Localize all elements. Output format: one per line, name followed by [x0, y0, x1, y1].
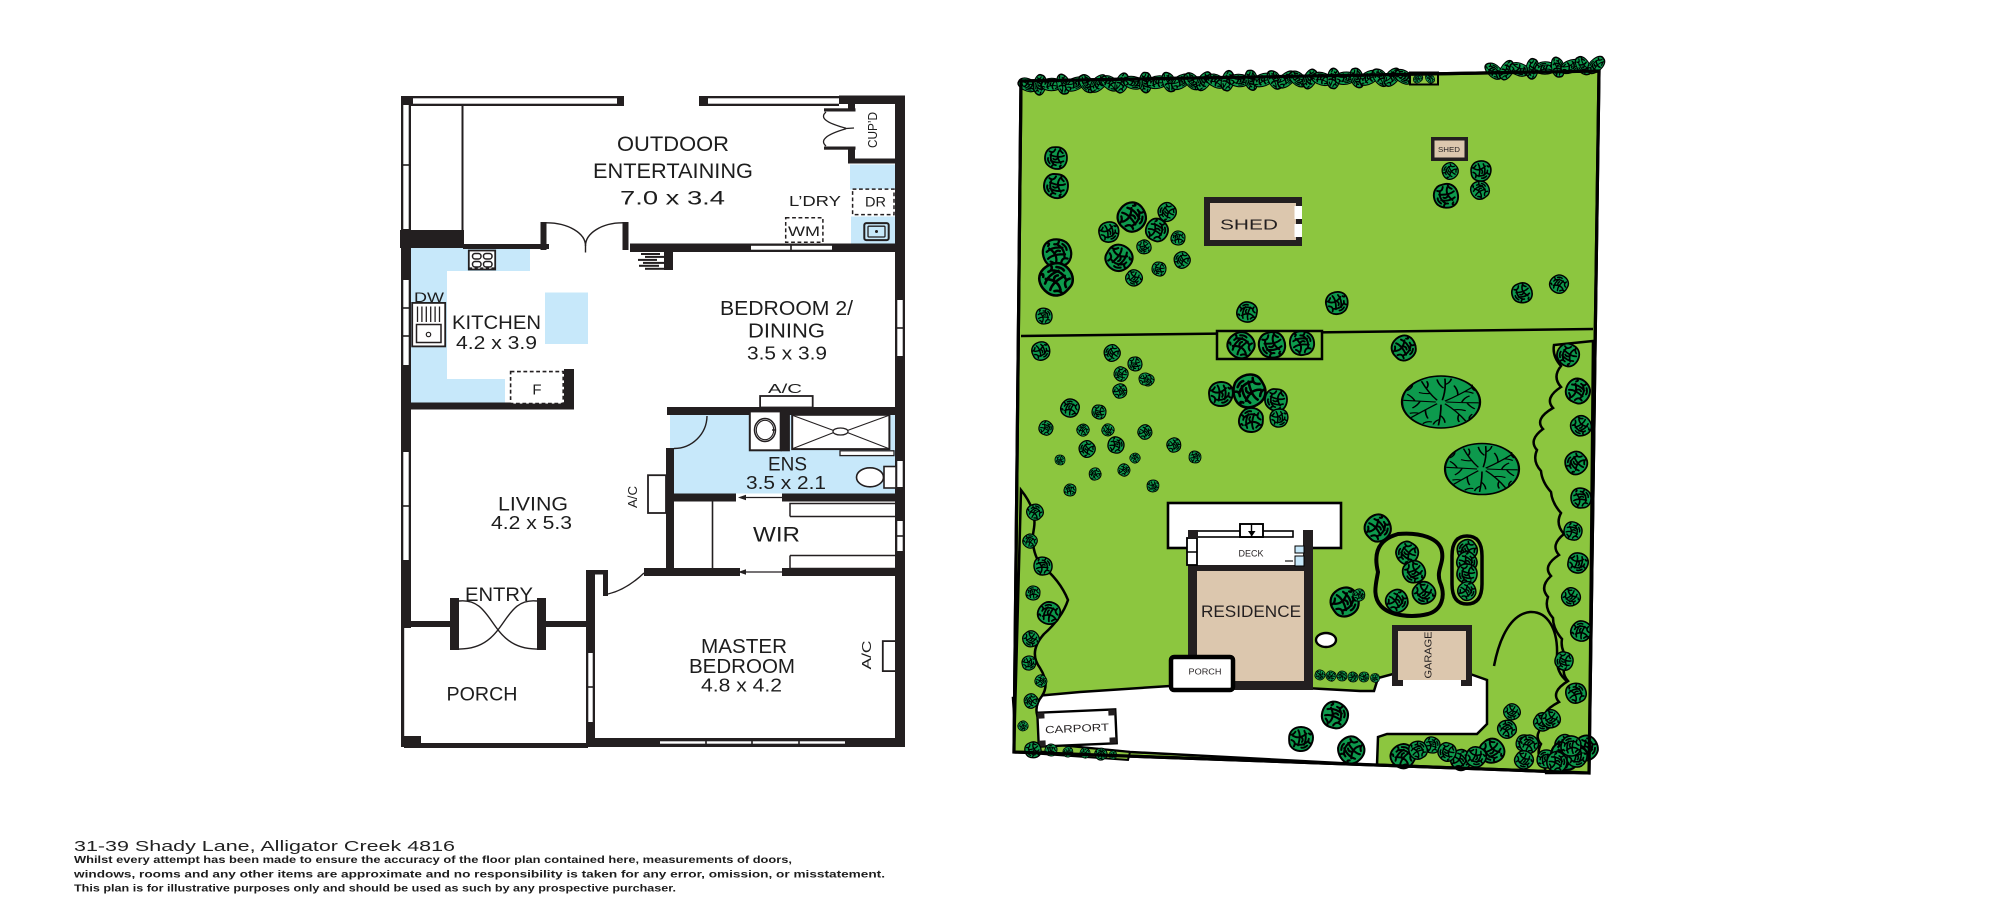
- svg-text:This plan is for illustrative: This plan is for illustrative purposes o…: [74, 883, 676, 895]
- svg-text:ENTRY: ENTRY: [465, 585, 533, 606]
- svg-text:A/C: A/C: [860, 641, 874, 670]
- svg-text:7.0 x 3.4: 7.0 x 3.4: [620, 189, 726, 210]
- svg-text:A/C: A/C: [768, 381, 802, 396]
- svg-text:31-39 Shady Lane, Alligator Cr: 31-39 Shady Lane, Alligator Creek 4816: [74, 838, 455, 855]
- svg-text:WIR: WIR: [753, 524, 800, 547]
- svg-text:3.5 x 3.9: 3.5 x 3.9: [747, 343, 827, 364]
- svg-text:DW: DW: [414, 290, 444, 305]
- svg-text:PORCH: PORCH: [447, 685, 518, 706]
- svg-text:L’DRY: L’DRY: [789, 193, 841, 210]
- svg-text:4.2 x 3.9: 4.2 x 3.9: [456, 332, 537, 353]
- svg-text:SHED: SHED: [1438, 147, 1460, 154]
- svg-text:BEDROOM 2/: BEDROOM 2/: [720, 298, 853, 320]
- svg-text:4.8 x 4.2: 4.8 x 4.2: [701, 675, 782, 696]
- svg-text:KITCHEN: KITCHEN: [452, 313, 541, 334]
- svg-text:WM: WM: [788, 224, 820, 239]
- svg-text:MASTER: MASTER: [701, 636, 787, 658]
- svg-text:RESIDENCE: RESIDENCE: [1201, 602, 1301, 621]
- svg-text:CUP’D: CUP’D: [866, 112, 880, 148]
- svg-text:3.5 x 2.1: 3.5 x 2.1: [746, 473, 826, 493]
- svg-text:DR: DR: [865, 195, 886, 210]
- svg-text:DINING: DINING: [748, 321, 825, 343]
- svg-text:PORCH: PORCH: [1189, 667, 1222, 677]
- svg-text:windows, rooms and any other i: windows, rooms and any other items are a…: [73, 868, 885, 880]
- svg-text:Whilst every attempt has been: Whilst every attempt has been made to en…: [74, 854, 792, 866]
- svg-text:DECK: DECK: [1239, 549, 1264, 559]
- svg-text:F: F: [532, 382, 541, 399]
- svg-text:4.2 x 5.3: 4.2 x 5.3: [491, 512, 572, 533]
- svg-text:A/C: A/C: [626, 486, 640, 508]
- svg-text:SHED: SHED: [1220, 217, 1278, 234]
- svg-text:GARAGE: GARAGE: [1424, 631, 1435, 678]
- svg-text:ENTERTAINING: ENTERTAINING: [593, 159, 753, 183]
- svg-text:OUTDOOR: OUTDOOR: [617, 132, 729, 156]
